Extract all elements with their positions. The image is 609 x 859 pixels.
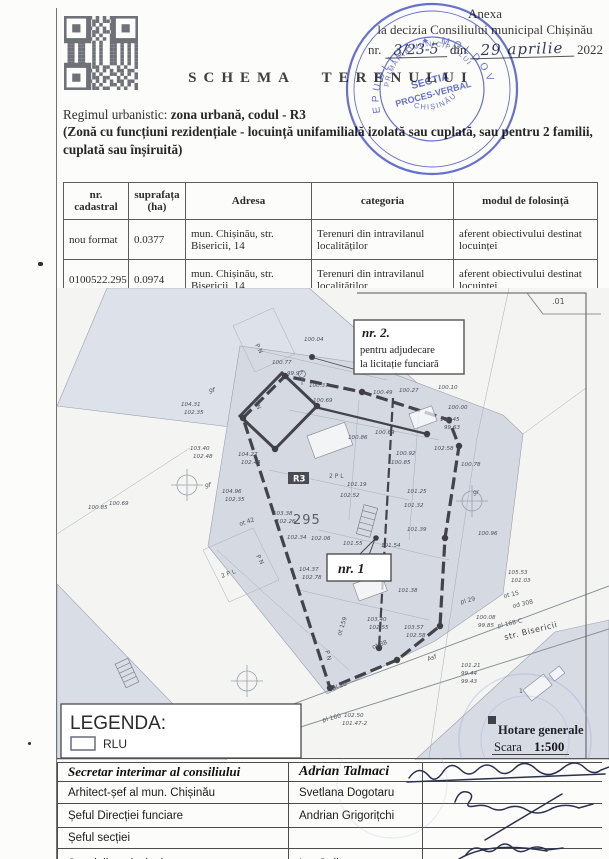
callout-nr2-title: nr. 2. <box>362 325 390 340</box>
elevation-label: 100.10 <box>438 385 458 391</box>
col-suprafata: suprafața (ha) <box>129 183 186 220</box>
hotare-label: Hotare generale <box>498 723 584 737</box>
elevation-label: 102.26 <box>276 519 296 525</box>
scanned-document-page: { "page": {"width": 609, "height": 859, … <box>0 0 609 859</box>
cadastral-map: R3 295 P NP NP NP N2 P L2 P Lgfgfgrot 42… <box>57 288 609 760</box>
elevation-label: 102.58 <box>434 446 454 452</box>
elevation-label: 100.45 <box>440 417 460 423</box>
scan-speck <box>38 262 43 266</box>
col-categoria: categoria <box>312 183 454 220</box>
callout-nr1-title: nr. 1 <box>338 562 364 577</box>
cell-nr-cadastral: nou format <box>64 220 129 260</box>
elevation-label: 101.19 <box>347 482 367 488</box>
signer-role: Șeful Direcției funciare <box>58 804 289 828</box>
signer-name <box>289 828 423 849</box>
elevation-label: 101.32 <box>404 503 424 509</box>
cell-mod-folosinta: aferent obiectivului destinat locuinței <box>454 220 598 260</box>
elevation-label: 100.00 <box>448 405 468 411</box>
elevation-label: 99.85 <box>478 623 494 629</box>
signer-name: Svetlana Dogotaru <box>289 782 423 804</box>
col-nr-cadastral: nr. cadastral <box>64 183 129 220</box>
elevation-label: 101.54 <box>381 543 401 549</box>
signer-name: Adrian Talmaci <box>289 763 423 782</box>
hotare-swatch <box>488 716 496 724</box>
elevation-label: 102.44 <box>241 460 261 466</box>
elevation-label: 100.96 <box>478 531 498 537</box>
legend-item-rlu: RLU <box>103 737 127 751</box>
signature-table-wrap: Secretar interimar al consiliului Adrian… <box>57 762 602 859</box>
parcel-number-label: 295 <box>293 513 321 528</box>
elevation-label: 99.44 <box>461 671 477 677</box>
scan-speck <box>28 742 31 745</box>
elevation-label: 100.37 <box>309 383 329 389</box>
elevation-label: 100.92 <box>396 451 416 457</box>
map-label: 1 <box>519 688 523 695</box>
elevation-label: 104.27 <box>238 452 258 458</box>
elevation-label: 101.21 <box>461 663 481 669</box>
elevation-label: 105.53 <box>508 570 528 576</box>
elevation-label: 101.39 <box>407 527 427 533</box>
elevation-label: 101.03 <box>511 578 531 584</box>
elevation-label: 100.86 <box>348 435 368 441</box>
elevation-label: 102.78 <box>302 575 322 581</box>
elevation-label: 102.34 <box>287 535 307 541</box>
signature-cell <box>423 804 603 828</box>
elevation-label: 102.48 <box>193 454 213 460</box>
signer-name: Andrian Grigorițchi <box>289 804 423 828</box>
scara-label: Scara <box>494 740 522 754</box>
legend-title: LEGENDA: <box>70 713 166 734</box>
signature-cell <box>423 763 603 782</box>
map-label: gf <box>209 387 216 394</box>
col-adresa: Adresa <box>186 183 312 220</box>
map-corner-label: .01 <box>552 297 565 306</box>
legend-box: LEGENDA: RLU <box>61 704 301 758</box>
elevation-label: 102.35 <box>184 410 204 416</box>
elevation-label: 102.50 <box>344 713 364 719</box>
scara-value: 1:500 <box>534 739 564 754</box>
elevation-label: 101.25 <box>407 489 427 495</box>
signature-row: Șeful Direcției funciare Andrian Grigori… <box>58 804 603 828</box>
zone-code-label: R3 <box>293 475 306 485</box>
cell-suprafata: 0.0377 <box>129 220 186 260</box>
elevation-label: 103.40 <box>367 617 387 623</box>
cell-adresa: mun. Chișinău, str. Bisericii, 14 <box>186 220 312 260</box>
cell-categoria: Terenuri din intravilanul localităților <box>312 220 454 260</box>
elevation-label: 100.08 <box>476 615 496 621</box>
urbanism-code: zona urbană, codul - R3 <box>171 107 306 122</box>
elevation-label: 104.96 <box>222 489 242 495</box>
signature-row: Șeful secției <box>58 828 603 849</box>
elevation-label: 100.49 <box>373 390 393 396</box>
elevation-label: 100.85 <box>391 460 411 466</box>
urbanism-prefix: Regimul urbanistic: <box>63 107 171 122</box>
page-title: SCHEMA TERENULUI <box>57 70 605 87</box>
elevation-label: 100.04 <box>304 337 324 343</box>
signer-role: Șeful secției <box>58 828 289 849</box>
signature-cell <box>423 782 603 804</box>
elevation-label: 102.55 <box>369 625 389 631</box>
elevation-label: 100.69 <box>109 501 129 507</box>
qr-finder-top-right <box>113 16 138 41</box>
signer-role: Specialist principal <box>58 849 289 859</box>
elevation-label: 101.47-2 <box>342 721 368 727</box>
elevation-label: 102.06 <box>311 536 331 542</box>
elevation-label: 103.40 <box>190 446 210 452</box>
legend-swatch-rlu <box>71 737 95 750</box>
signature-cell <box>423 849 603 859</box>
elevation-label: 100.69 <box>313 398 333 404</box>
elevation-label: 102.58 <box>406 633 426 639</box>
elevation-label: 100.85 <box>88 505 108 511</box>
map-label: gf <box>205 482 212 489</box>
col-mod-folosinta: modul de folosință <box>454 183 598 220</box>
elevation-label: 103.38 <box>273 511 293 517</box>
elevation-label: 100.78 <box>461 462 481 468</box>
map-label: gr <box>473 489 480 496</box>
annex-year: 2022 <box>577 42 603 57</box>
signature-table: Secretar interimar al consiliului Adrian… <box>57 762 602 859</box>
callout-nr2-line2: la licitație funciară <box>360 359 439 370</box>
elevation-label: 103.57 <box>404 625 424 631</box>
qr-finder-top-left <box>64 16 89 41</box>
elevation-label: 101.55 <box>343 541 363 547</box>
signature-row: Specialist principal Ion Galben <box>58 849 603 859</box>
map-label: 2 P L <box>329 473 344 480</box>
elevation-label: 102.52 <box>340 493 360 499</box>
signer-role: Secretar interimar al consiliului <box>58 763 289 782</box>
signature-row: Secretar interimar al consiliului Adrian… <box>58 763 603 782</box>
elevation-label: 99.97 <box>287 371 303 377</box>
callout-nr2-line1: pentru adjudecare <box>360 345 435 356</box>
urbanism-paren-line2: cuplată sau înșiruită) <box>63 142 182 157</box>
urbanism-note: Regimul urbanistic: zona urbană, codul -… <box>63 106 603 158</box>
elevation-label: 99.43 <box>461 679 477 685</box>
elevation-label: 100.27 <box>399 388 419 394</box>
elevation-label: 101.38 <box>398 588 418 594</box>
elevation-label: 104.31 <box>181 402 201 408</box>
elevation-label: 102.35 <box>225 497 245 503</box>
signature-row: Arhitect-șef al mun. Chișinău Svetlana D… <box>58 782 603 804</box>
parcel-table: nr. cadastral suprafața (ha) Adresa cate… <box>63 182 598 300</box>
table-row: nou format 0.0377 mun. Chișinău, str. Bi… <box>64 220 598 260</box>
elevation-label: 99.63 <box>444 425 460 431</box>
parcel-table-header-row: nr. cadastral suprafața (ha) Adresa cate… <box>64 183 598 220</box>
signer-name: Ion Galben <box>289 849 423 859</box>
signer-role: Arhitect-șef al mun. Chișinău <box>58 782 289 804</box>
signature-cell <box>423 828 603 849</box>
elevation-label: 104.37 <box>299 567 319 573</box>
elevation-label: 100.69 <box>375 430 395 436</box>
official-stamp: REPUBLICA ✦ MOLDOVA PRIMĂRIA MUNICIPIULU… <box>343 0 521 178</box>
elevation-label: 100.77 <box>272 360 292 366</box>
